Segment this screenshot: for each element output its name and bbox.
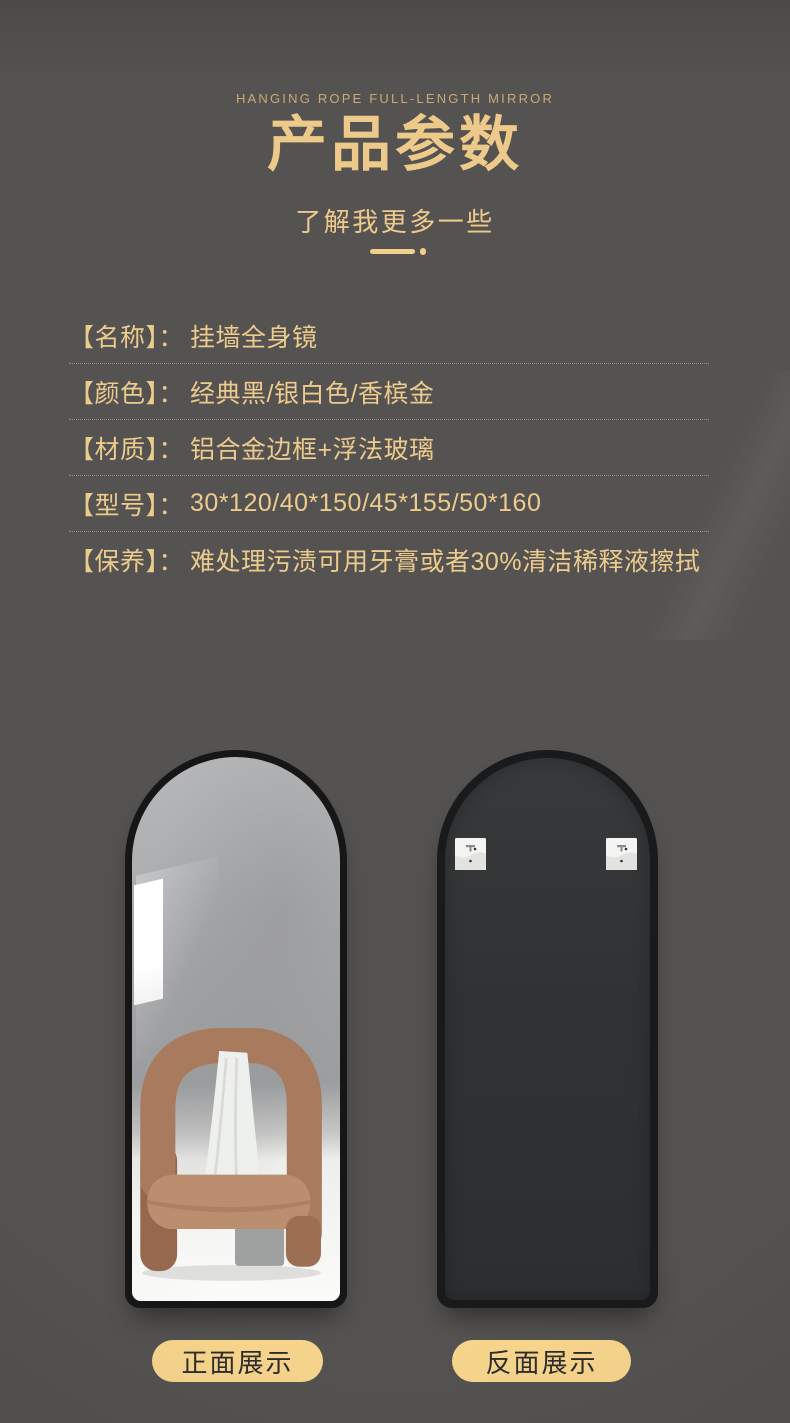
spec-label: 【颜色】： [69,374,184,410]
spec-label: 【保养】： [69,542,184,578]
spec-value: 挂墙全身镜 [190,318,318,354]
spec-label: 【名称】： [69,318,184,354]
front-mirror-photo [125,750,347,1308]
spec-row-color: 【颜色】： 经典黑/银白色/香槟金 [69,364,709,420]
back-mirror-photo [437,750,658,1308]
hanging-bracket-icon [455,838,486,870]
spec-label: 【型号】： [69,486,184,522]
title-divider [3,248,790,255]
page-title: 产品参数 [0,114,790,176]
mirror-glass-reflection [132,757,340,1301]
product-parameters-page: HANGING ROPE FULL-LENGTH MIRROR 产品参数 了解我… [0,0,790,1423]
hanging-bracket-icon [606,838,637,870]
page-subtitle: 了解我更多一些 [0,202,790,239]
eyebrow-english-tagline: HANGING ROPE FULL-LENGTH MIRROR [0,91,790,106]
spec-list: 【名称】： 挂墙全身镜 【颜色】： 经典黑/银白色/香槟金 【材质】： 铝合金边… [69,308,709,587]
back-view-button[interactable]: 反面展示 [452,1340,631,1382]
spec-value: 经典黑/银白色/香槟金 [190,374,434,410]
spec-value: 30*120/40*150/45*155/50*160 [190,489,541,518]
spec-row-name: 【名称】： 挂墙全身镜 [69,308,709,364]
window-light-reflection [134,879,163,1005]
divider-bar [370,249,415,255]
spec-row-material: 【材质】： 铝合金边框+浮法玻璃 [69,420,709,476]
armchair-reflection [132,996,330,1284]
mirror-back-panel [445,758,650,1300]
front-view-button[interactable]: 正面展示 [152,1340,323,1382]
spec-row-model: 【型号】： 30*120/40*150/45*155/50*160 [69,476,709,532]
spec-value: 难处理污渍可用牙膏或者30%清洁稀释液擦拭 [190,542,701,578]
spec-value: 铝合金边框+浮法玻璃 [190,430,435,466]
divider-dot-icon [420,248,427,255]
spec-row-care: 【保养】： 难处理污渍可用牙膏或者30%清洁稀释液擦拭 [69,532,709,587]
spec-label: 【材质】： [69,430,184,466]
